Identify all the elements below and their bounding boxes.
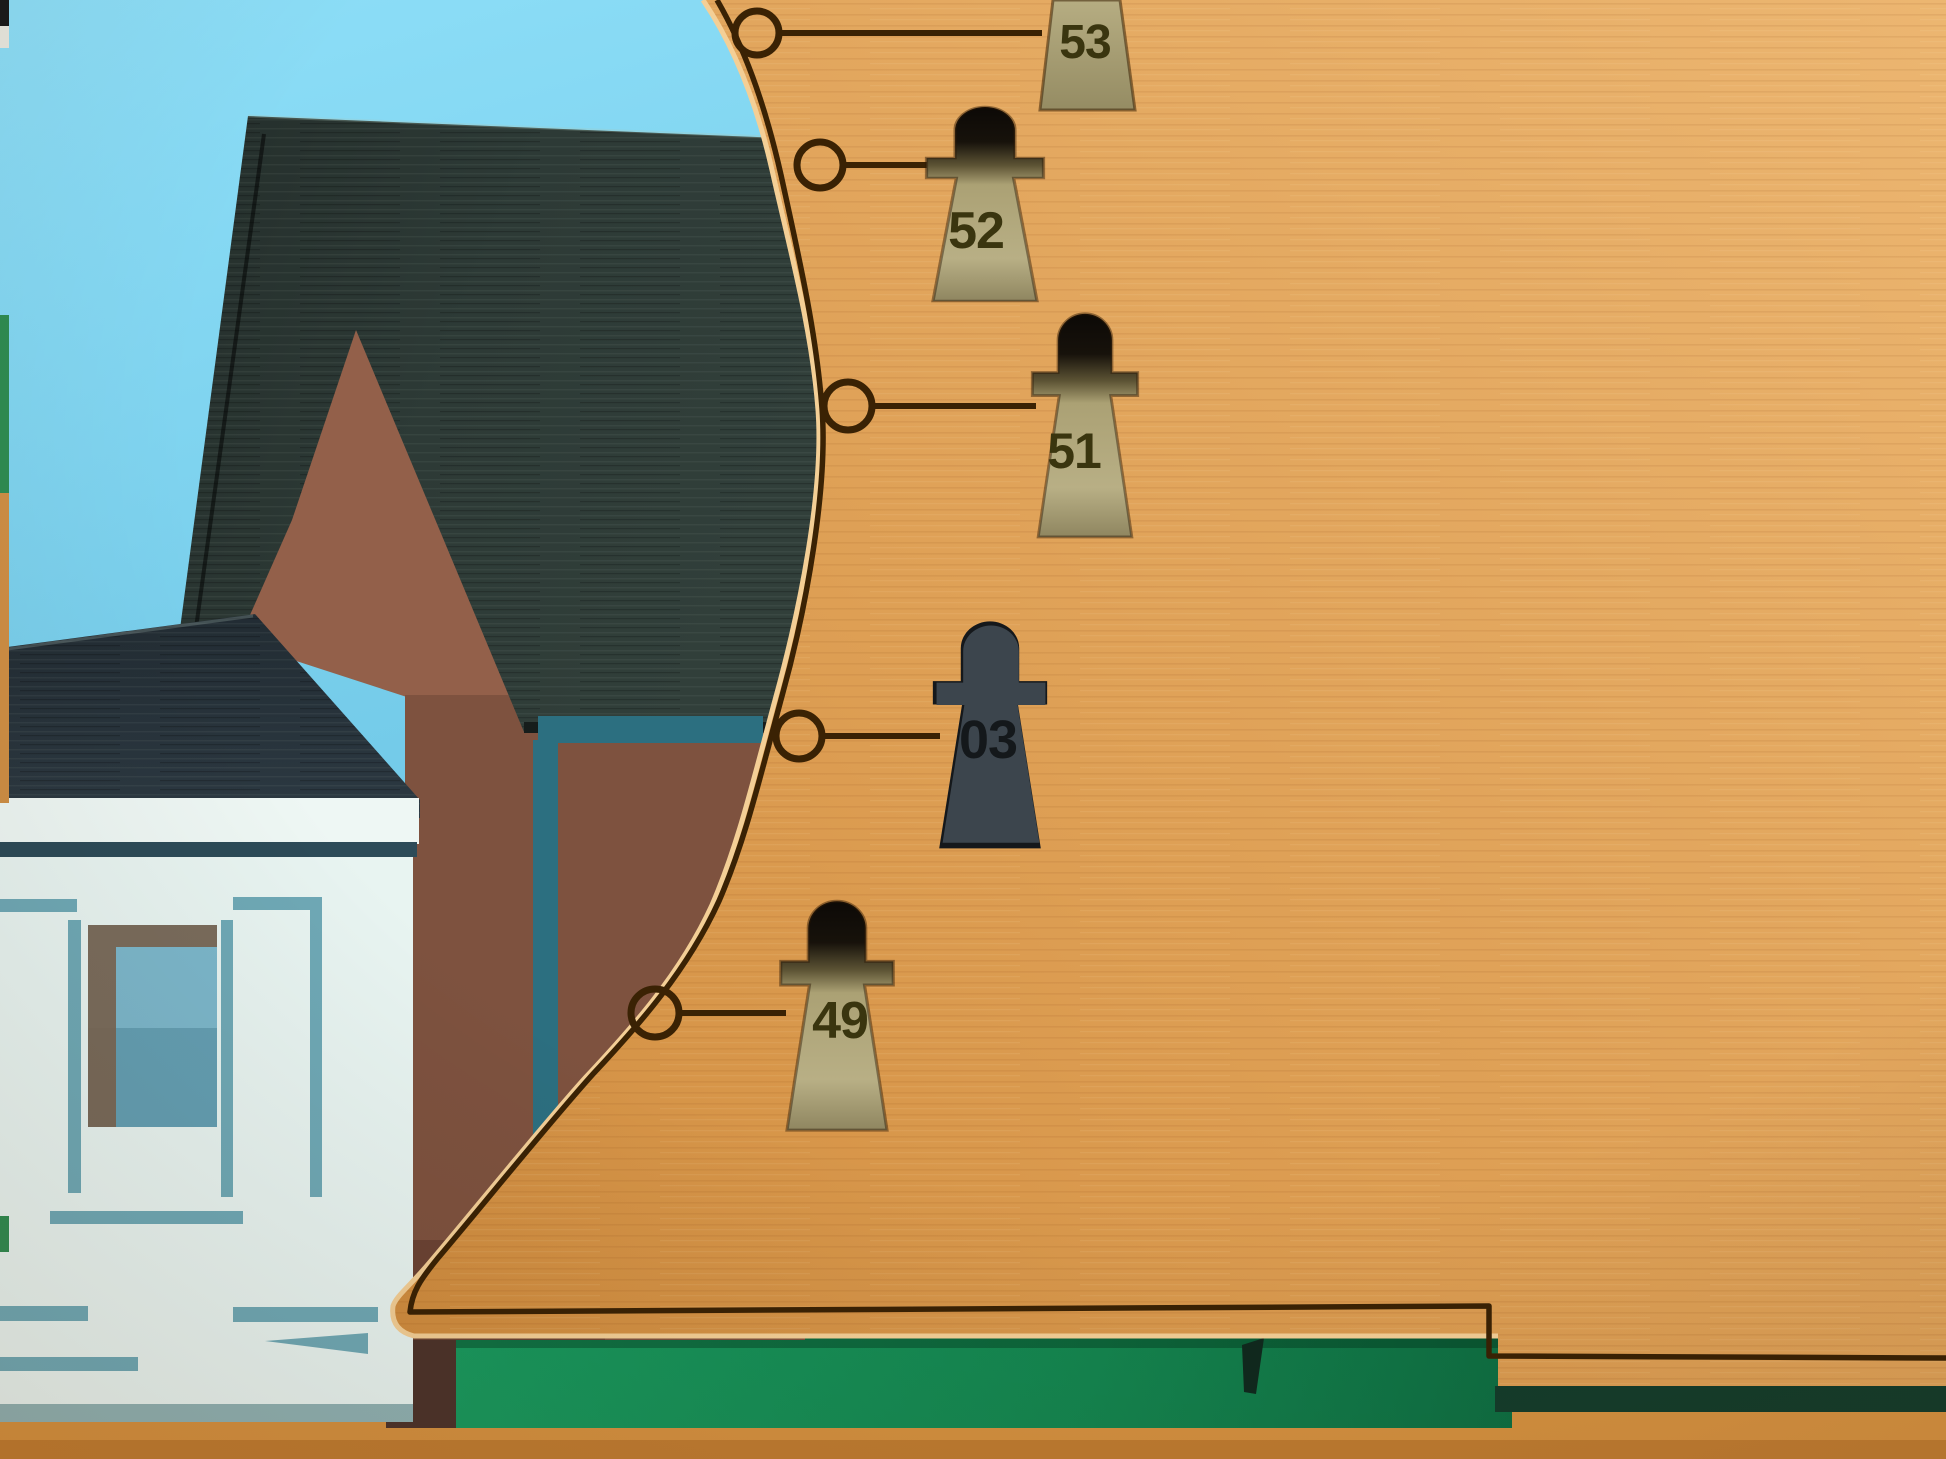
photo-wooden-lighthouse-map: 53 52 51 03 49	[0, 0, 1946, 1459]
photo-lighting-overlay	[0, 0, 1946, 1459]
scene-canvas: 53 52 51 03 49	[0, 0, 1946, 1459]
